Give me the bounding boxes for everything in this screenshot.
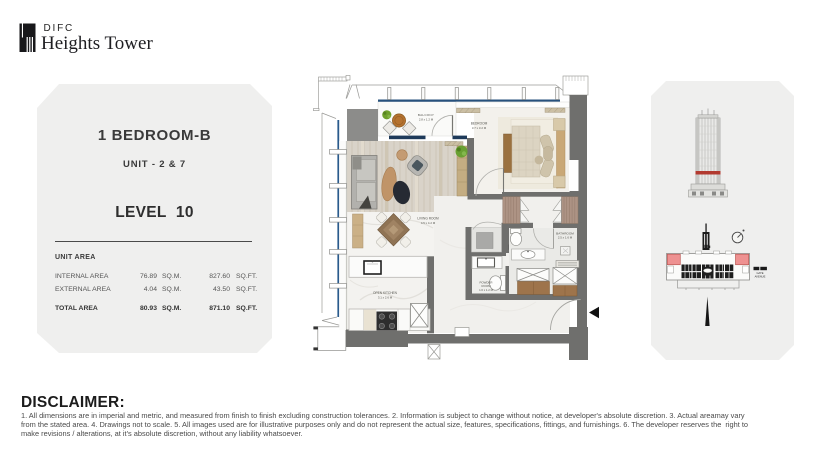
svg-text:4.5 x 4.2 M: 4.5 x 4.2 M (421, 221, 436, 225)
svg-text:2.5 x 1.6 M: 2.5 x 1.6 M (558, 236, 573, 240)
svg-text:AVENUE: AVENUE (755, 274, 766, 278)
svg-text:GATE: GATE (756, 271, 763, 275)
svg-text:3.7 x 3.2 M: 3.7 x 3.2 M (472, 126, 487, 130)
svg-text:2.8 x 1.2 M: 2.8 x 1.2 M (419, 117, 434, 121)
svg-text:BALCONY: BALCONY (418, 113, 434, 117)
svg-text:3.1 x 2.6 M: 3.1 x 2.6 M (378, 295, 393, 299)
svg-text:OPEN KITCHEN: OPEN KITCHEN (373, 291, 398, 295)
svg-text:1.6 x 1.2 M: 1.6 x 1.2 M (479, 288, 494, 292)
